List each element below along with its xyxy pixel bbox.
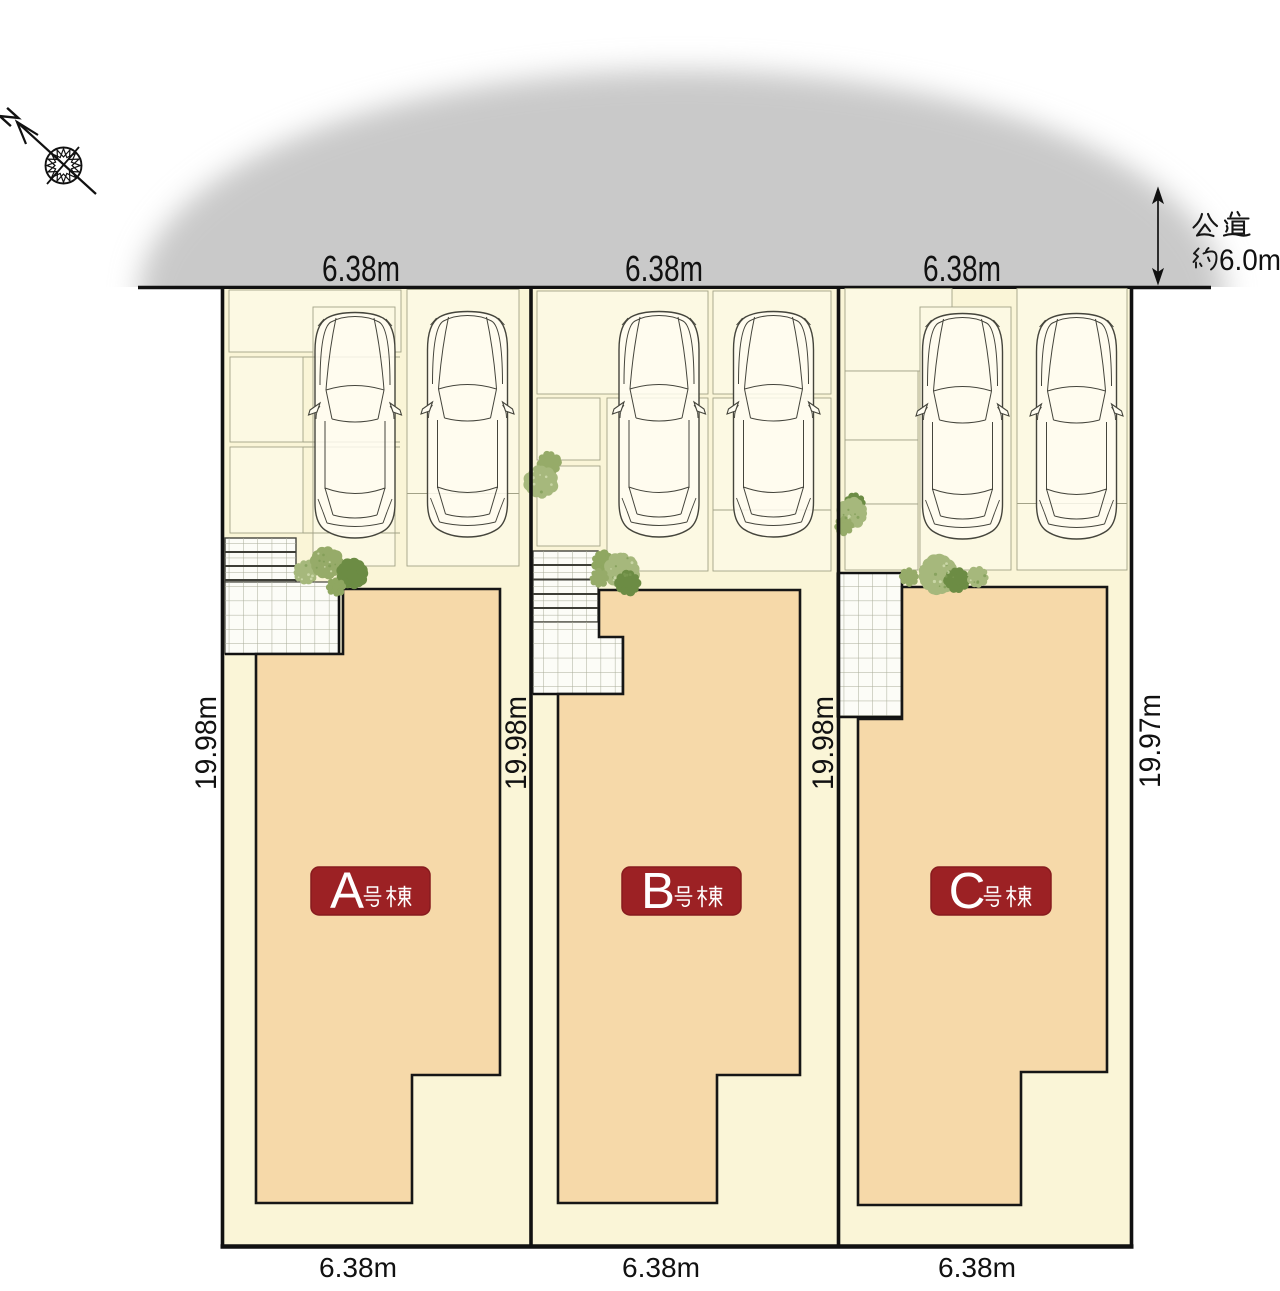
- svg-text:A: A: [330, 862, 364, 919]
- svg-text:6.38m: 6.38m: [319, 1252, 397, 1283]
- svg-text:6.38m: 6.38m: [622, 1252, 700, 1283]
- svg-text:19.97m: 19.97m: [1134, 694, 1167, 788]
- svg-text:6.38m: 6.38m: [625, 248, 703, 289]
- svg-text:C: C: [949, 862, 986, 919]
- svg-text:6.38m: 6.38m: [923, 248, 1001, 289]
- svg-text:B: B: [641, 862, 675, 919]
- svg-text:6.38m: 6.38m: [938, 1252, 1016, 1283]
- svg-text:19.98m: 19.98m: [807, 696, 840, 790]
- svg-text:19.98m: 19.98m: [500, 696, 533, 790]
- svg-text:19.98m: 19.98m: [190, 696, 223, 790]
- svg-text:6.0m: 6.0m: [1219, 244, 1280, 277]
- svg-text:6.38m: 6.38m: [322, 248, 400, 289]
